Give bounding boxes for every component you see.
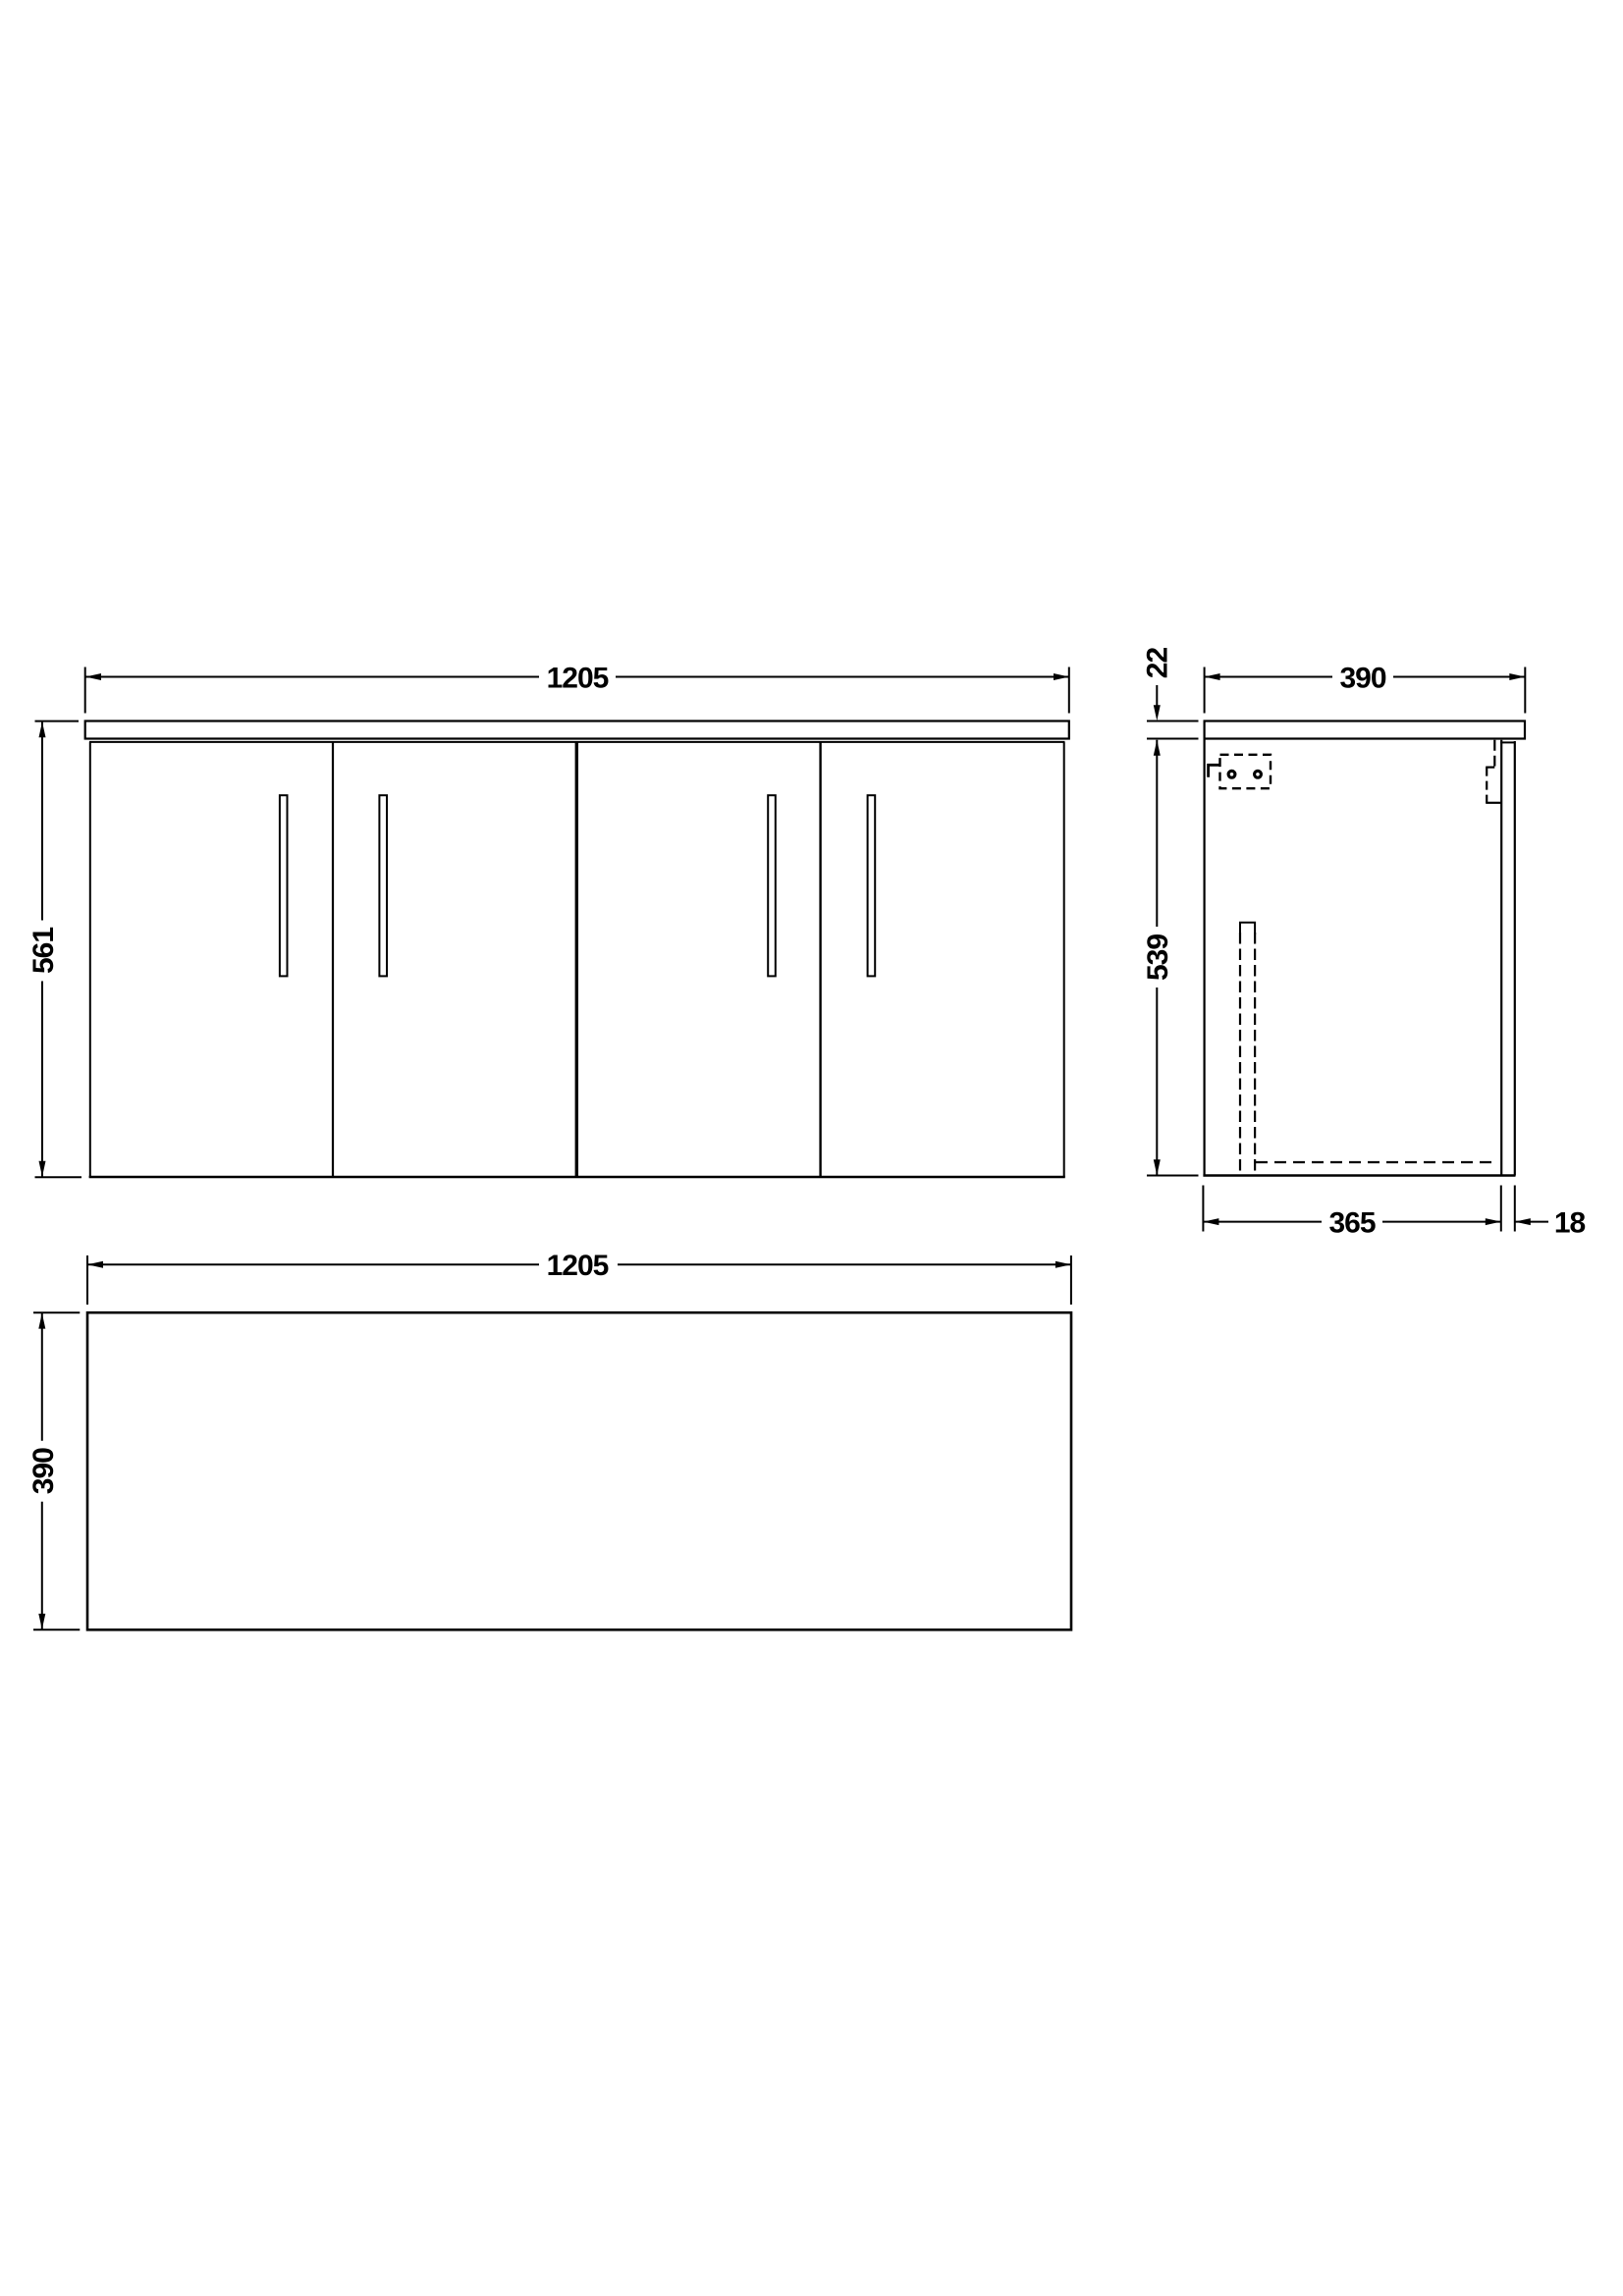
svg-text:561: 561: [27, 928, 60, 974]
svg-text:1205: 1205: [547, 662, 609, 694]
svg-text:390: 390: [1339, 662, 1385, 694]
svg-text:22: 22: [1141, 648, 1173, 679]
svg-text:539: 539: [1142, 934, 1174, 981]
svg-text:1205: 1205: [547, 1250, 609, 1282]
svg-text:365: 365: [1328, 1206, 1375, 1239]
svg-text:390: 390: [27, 1448, 60, 1494]
svg-text:18: 18: [1554, 1206, 1586, 1239]
